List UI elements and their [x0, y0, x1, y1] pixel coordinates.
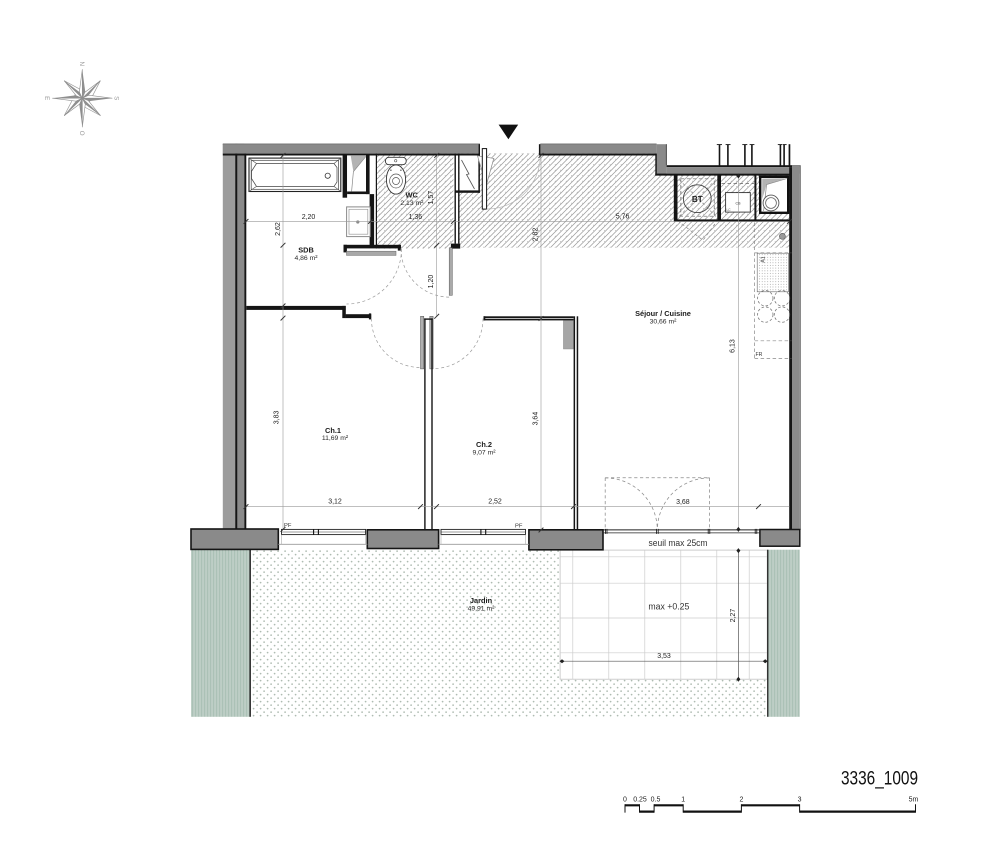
svg-text:3336_1009: 3336_1009 — [841, 767, 918, 789]
svg-text:0.25: 0.25 — [633, 796, 647, 803]
svg-text:3,53: 3,53 — [657, 653, 671, 660]
svg-text:1,20: 1,20 — [428, 275, 435, 289]
svg-text:Jardin: Jardin — [470, 596, 493, 605]
svg-text:2,82: 2,82 — [532, 228, 539, 242]
svg-text:N: N — [78, 62, 85, 66]
svg-text:E: E — [43, 96, 50, 100]
svg-text:PF: PF — [515, 524, 523, 530]
svg-text:2,13 m²: 2,13 m² — [400, 200, 424, 207]
svg-text:S: S — [112, 96, 119, 100]
svg-text:2,52: 2,52 — [488, 499, 502, 506]
svg-text:PF: PF — [284, 523, 292, 529]
svg-text:BT: BT — [692, 195, 703, 204]
svg-text:3,68: 3,68 — [676, 499, 690, 506]
svg-text:6,13: 6,13 — [730, 339, 737, 353]
svg-text:SDB: SDB — [298, 245, 314, 254]
svg-text:WC: WC — [406, 190, 419, 199]
svg-text:4,86 m²: 4,86 m² — [294, 255, 318, 262]
svg-text:3,12: 3,12 — [328, 499, 342, 506]
svg-text:0: 0 — [623, 796, 627, 803]
svg-text:Ch.1: Ch.1 — [325, 426, 341, 435]
svg-text:3: 3 — [798, 796, 802, 803]
svg-text:seuil max 25cm: seuil max 25cm — [649, 538, 708, 548]
svg-text:9,07 m²: 9,07 m² — [472, 450, 496, 457]
svg-text:FR: FR — [756, 352, 763, 358]
svg-text:2,27: 2,27 — [730, 609, 737, 623]
svg-text:30,66 m²: 30,66 m² — [650, 318, 678, 325]
svg-text:max +0.25: max +0.25 — [648, 602, 689, 612]
svg-text:2,62: 2,62 — [275, 222, 282, 236]
svg-text:A1: A1 — [761, 256, 767, 262]
svg-text:5m: 5m — [909, 796, 919, 803]
svg-text:LC: LC — [727, 208, 732, 212]
svg-text:Ch.2: Ch.2 — [476, 440, 492, 449]
svg-text:11,69 m²: 11,69 m² — [322, 435, 349, 442]
svg-text:O: O — [78, 131, 85, 136]
svg-text:1,57: 1,57 — [428, 191, 435, 205]
svg-text:3,64: 3,64 — [533, 412, 540, 426]
svg-text:2,20: 2,20 — [302, 214, 316, 221]
svg-text:5,76: 5,76 — [616, 213, 630, 220]
svg-text:Séjour / Cuisine: Séjour / Cuisine — [635, 309, 691, 318]
svg-text:2: 2 — [739, 796, 743, 803]
svg-text:3,83: 3,83 — [273, 410, 280, 424]
svg-text:1: 1 — [681, 796, 685, 803]
svg-text:0.5: 0.5 — [651, 796, 661, 803]
svg-text:49,91 m²: 49,91 m² — [468, 605, 496, 612]
svg-text:1,36: 1,36 — [409, 214, 423, 221]
